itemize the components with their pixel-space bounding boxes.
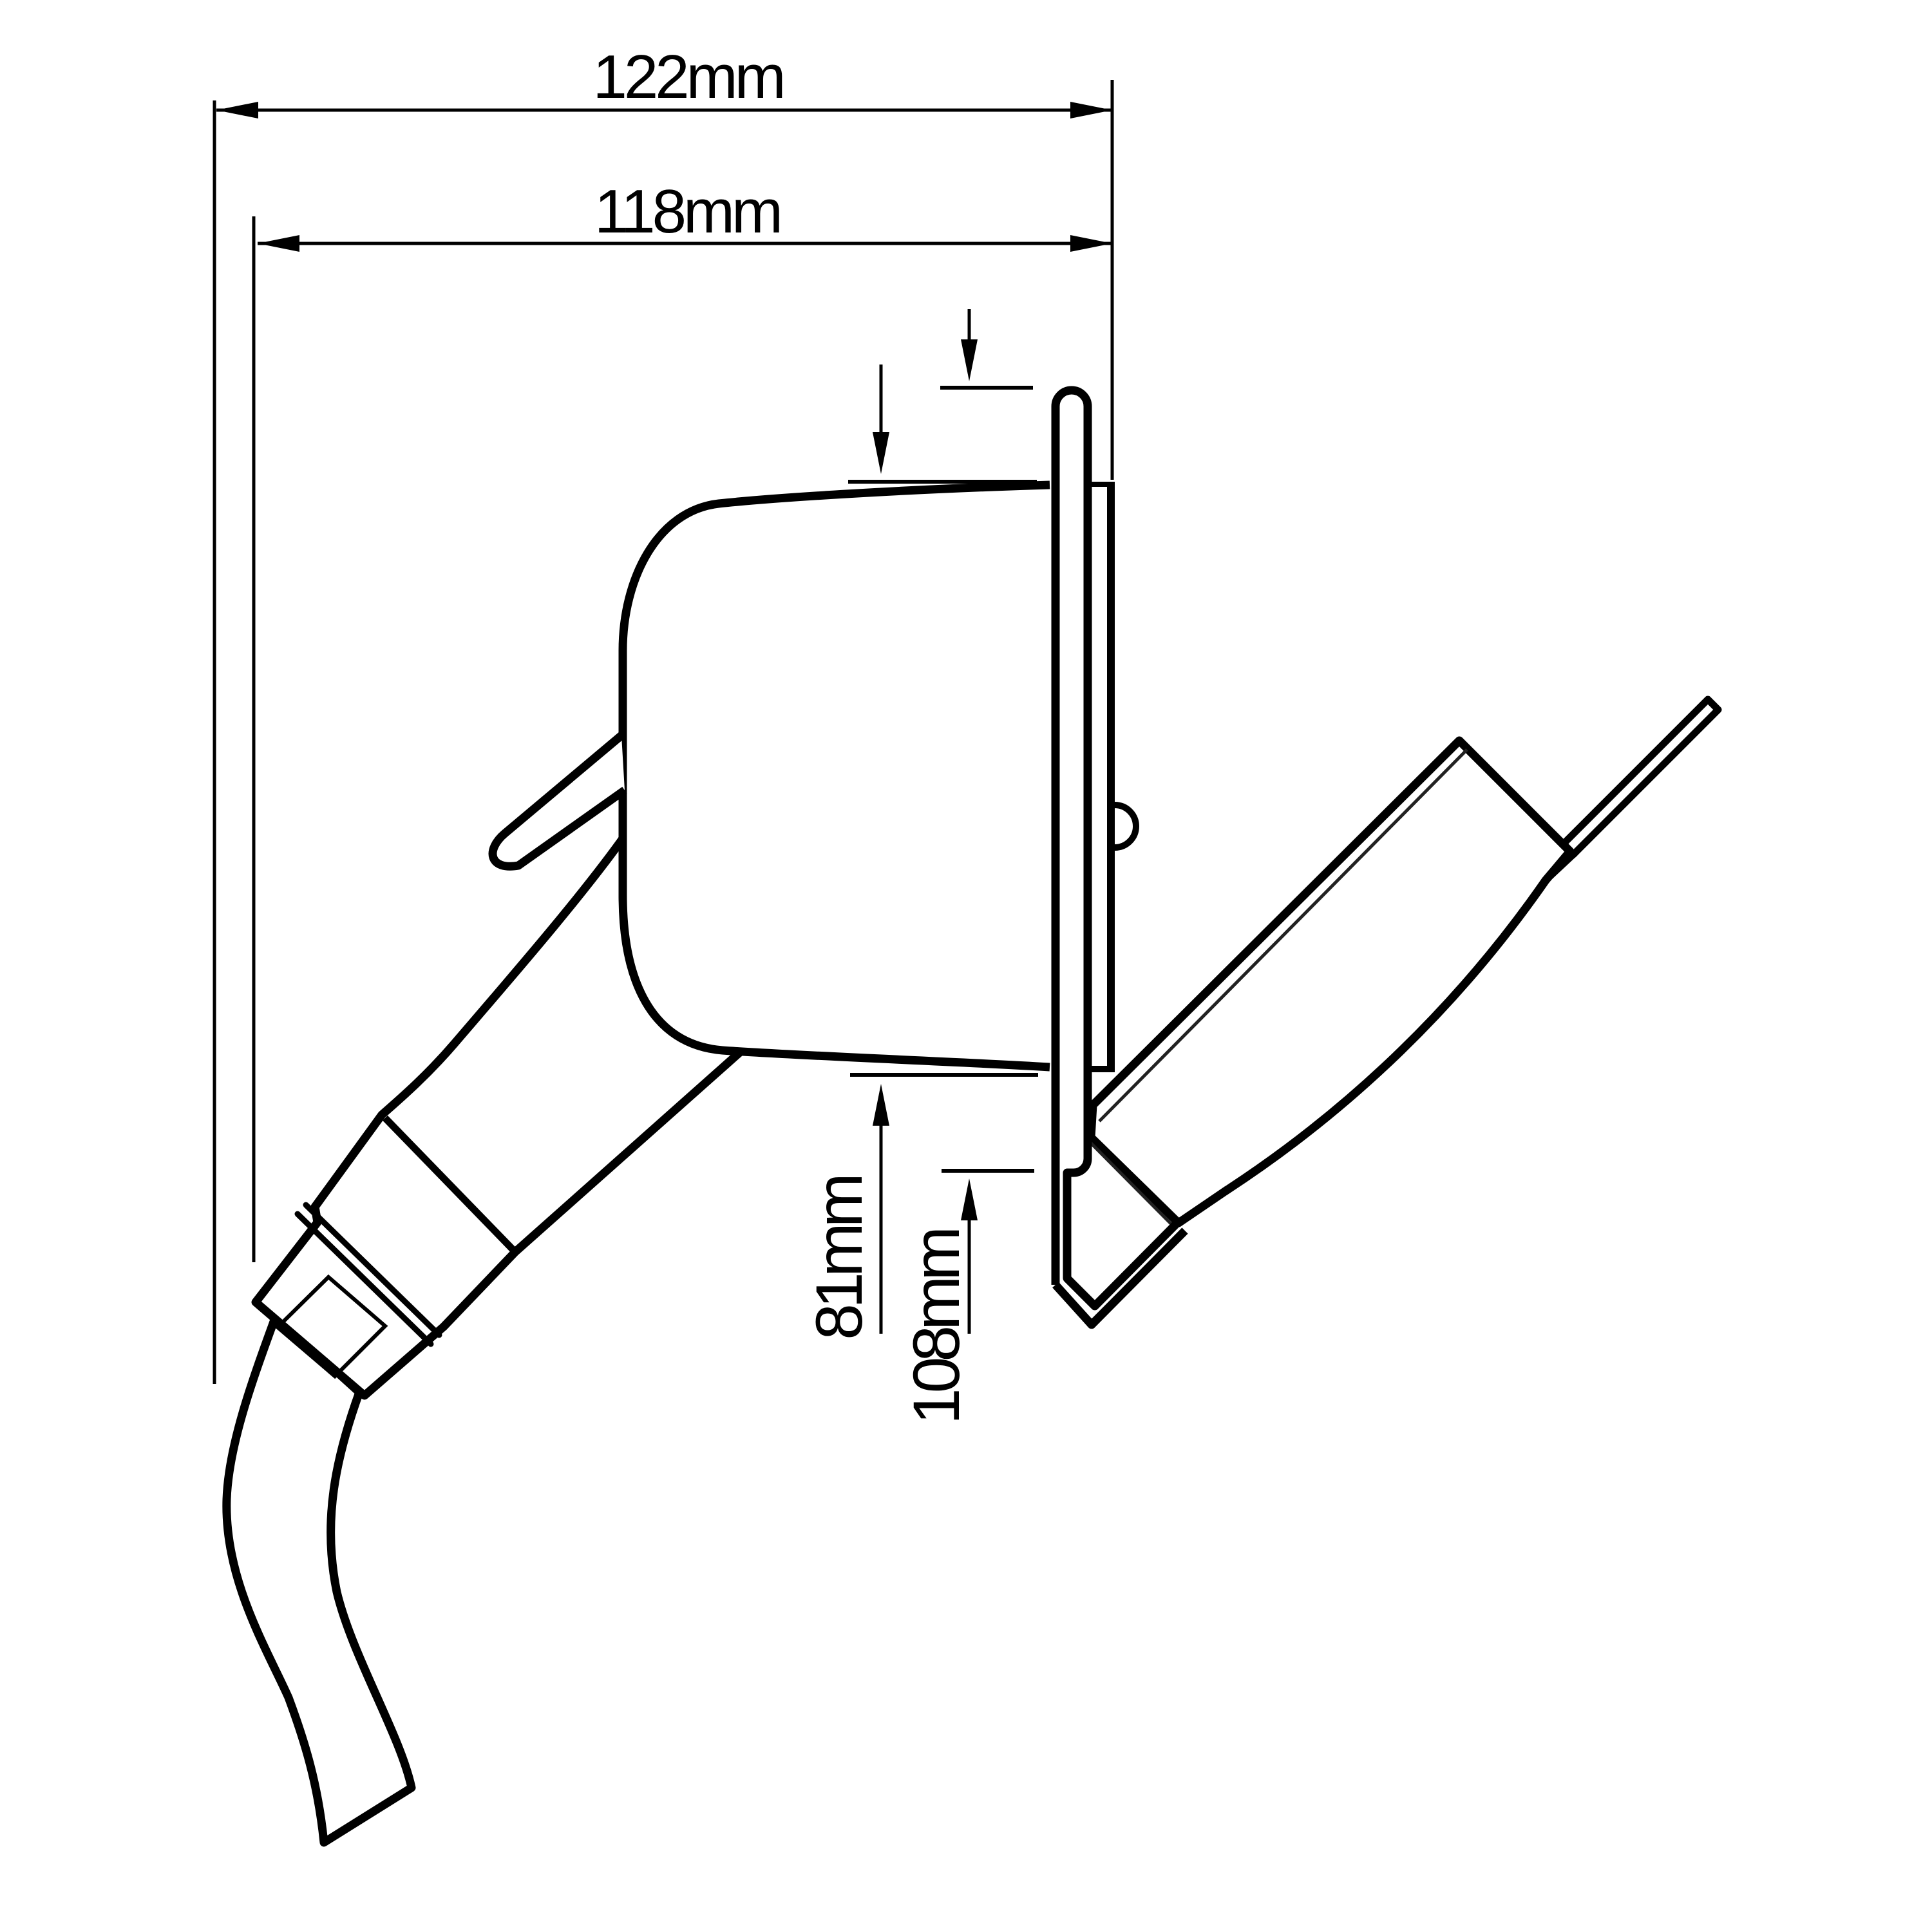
svg-text:118mm: 118mm <box>594 177 780 246</box>
svg-text:122mm: 122mm <box>592 43 782 111</box>
svg-text:108mm: 108mm <box>900 1230 973 1425</box>
svg-text:81mm: 81mm <box>802 1177 876 1340</box>
